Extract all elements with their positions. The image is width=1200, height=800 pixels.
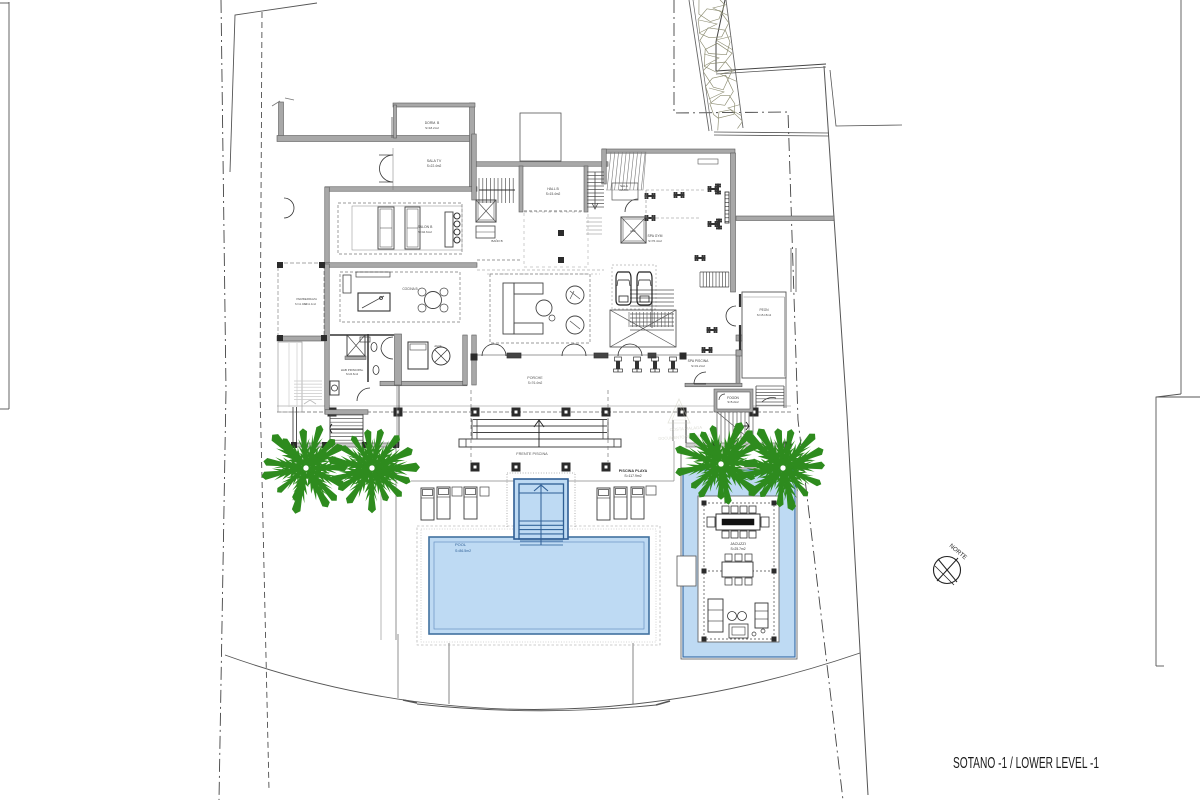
svg-text:S=31.2m2: S=31.2m2 <box>691 364 705 368</box>
svg-text:PORCHE: PORCHE <box>527 376 543 380</box>
svg-text:DORM. B: DORM. B <box>425 121 440 125</box>
svg-text:BAÑO B: BAÑO B <box>491 238 502 243</box>
svg-text:S=18.2m2: S=18.2m2 <box>425 126 439 130</box>
svg-text:ASC: ASC <box>630 229 636 233</box>
svg-text:HALL B: HALL B <box>547 187 559 191</box>
svg-text:S=86.5m2: S=86.5m2 <box>455 549 471 553</box>
svg-text:SALON B: SALON B <box>418 225 433 229</box>
svg-text:PISCINA PLAYA: PISCINA PLAYA <box>619 469 648 473</box>
svg-text:FRENTE PISCINA: FRENTE PISCINA <box>516 452 548 456</box>
svg-text:AGUA: AGUA <box>434 344 442 348</box>
svg-text:PEON: PEON <box>759 308 769 312</box>
svg-text:HAB PRINCIPAL: HAB PRINCIPAL <box>341 368 364 372</box>
svg-text:S=76.4m2: S=76.4m2 <box>648 239 662 243</box>
svg-text:S=22.4m2: S=22.4m2 <box>427 164 442 168</box>
svg-text:COCINA B: COCINA B <box>402 287 417 291</box>
svg-text:SPA PISCINA: SPA PISCINA <box>688 359 710 363</box>
svg-text:PERG.: PERG. <box>296 297 306 301</box>
svg-text:S=24.6m2: S=24.6m2 <box>346 372 359 376</box>
svg-text:S=15.4m2: S=15.4m2 <box>546 192 561 196</box>
svg-text:POOL: POOL <box>455 542 467 547</box>
svg-text:JACUZZI: JACUZZI <box>730 542 746 546</box>
svg-text:SPA GYM: SPA GYM <box>647 234 662 238</box>
svg-text:S=5.2m2: S=5.2m2 <box>727 400 739 404</box>
svg-text:S=25.7m2: S=25.7m2 <box>730 547 745 551</box>
svg-text:SALA TV: SALA TV <box>427 159 442 163</box>
svg-text:S=15.15m2: S=15.15m2 <box>757 313 772 317</box>
svg-text:S=76.4m2: S=76.4m2 <box>528 381 543 385</box>
svg-text:S=117.9m2: S=117.9m2 <box>624 474 641 478</box>
svg-text:SOTANO -1 / LOWER LEVEL -1: SOTANO -1 / LOWER LEVEL -1 <box>953 755 1099 772</box>
svg-text:S=11.0m2: S=11.0m2 <box>295 302 308 306</box>
svg-text:RATIO: RATIO <box>620 188 630 192</box>
svg-text:S=42.6m2: S=42.6m2 <box>418 230 432 234</box>
